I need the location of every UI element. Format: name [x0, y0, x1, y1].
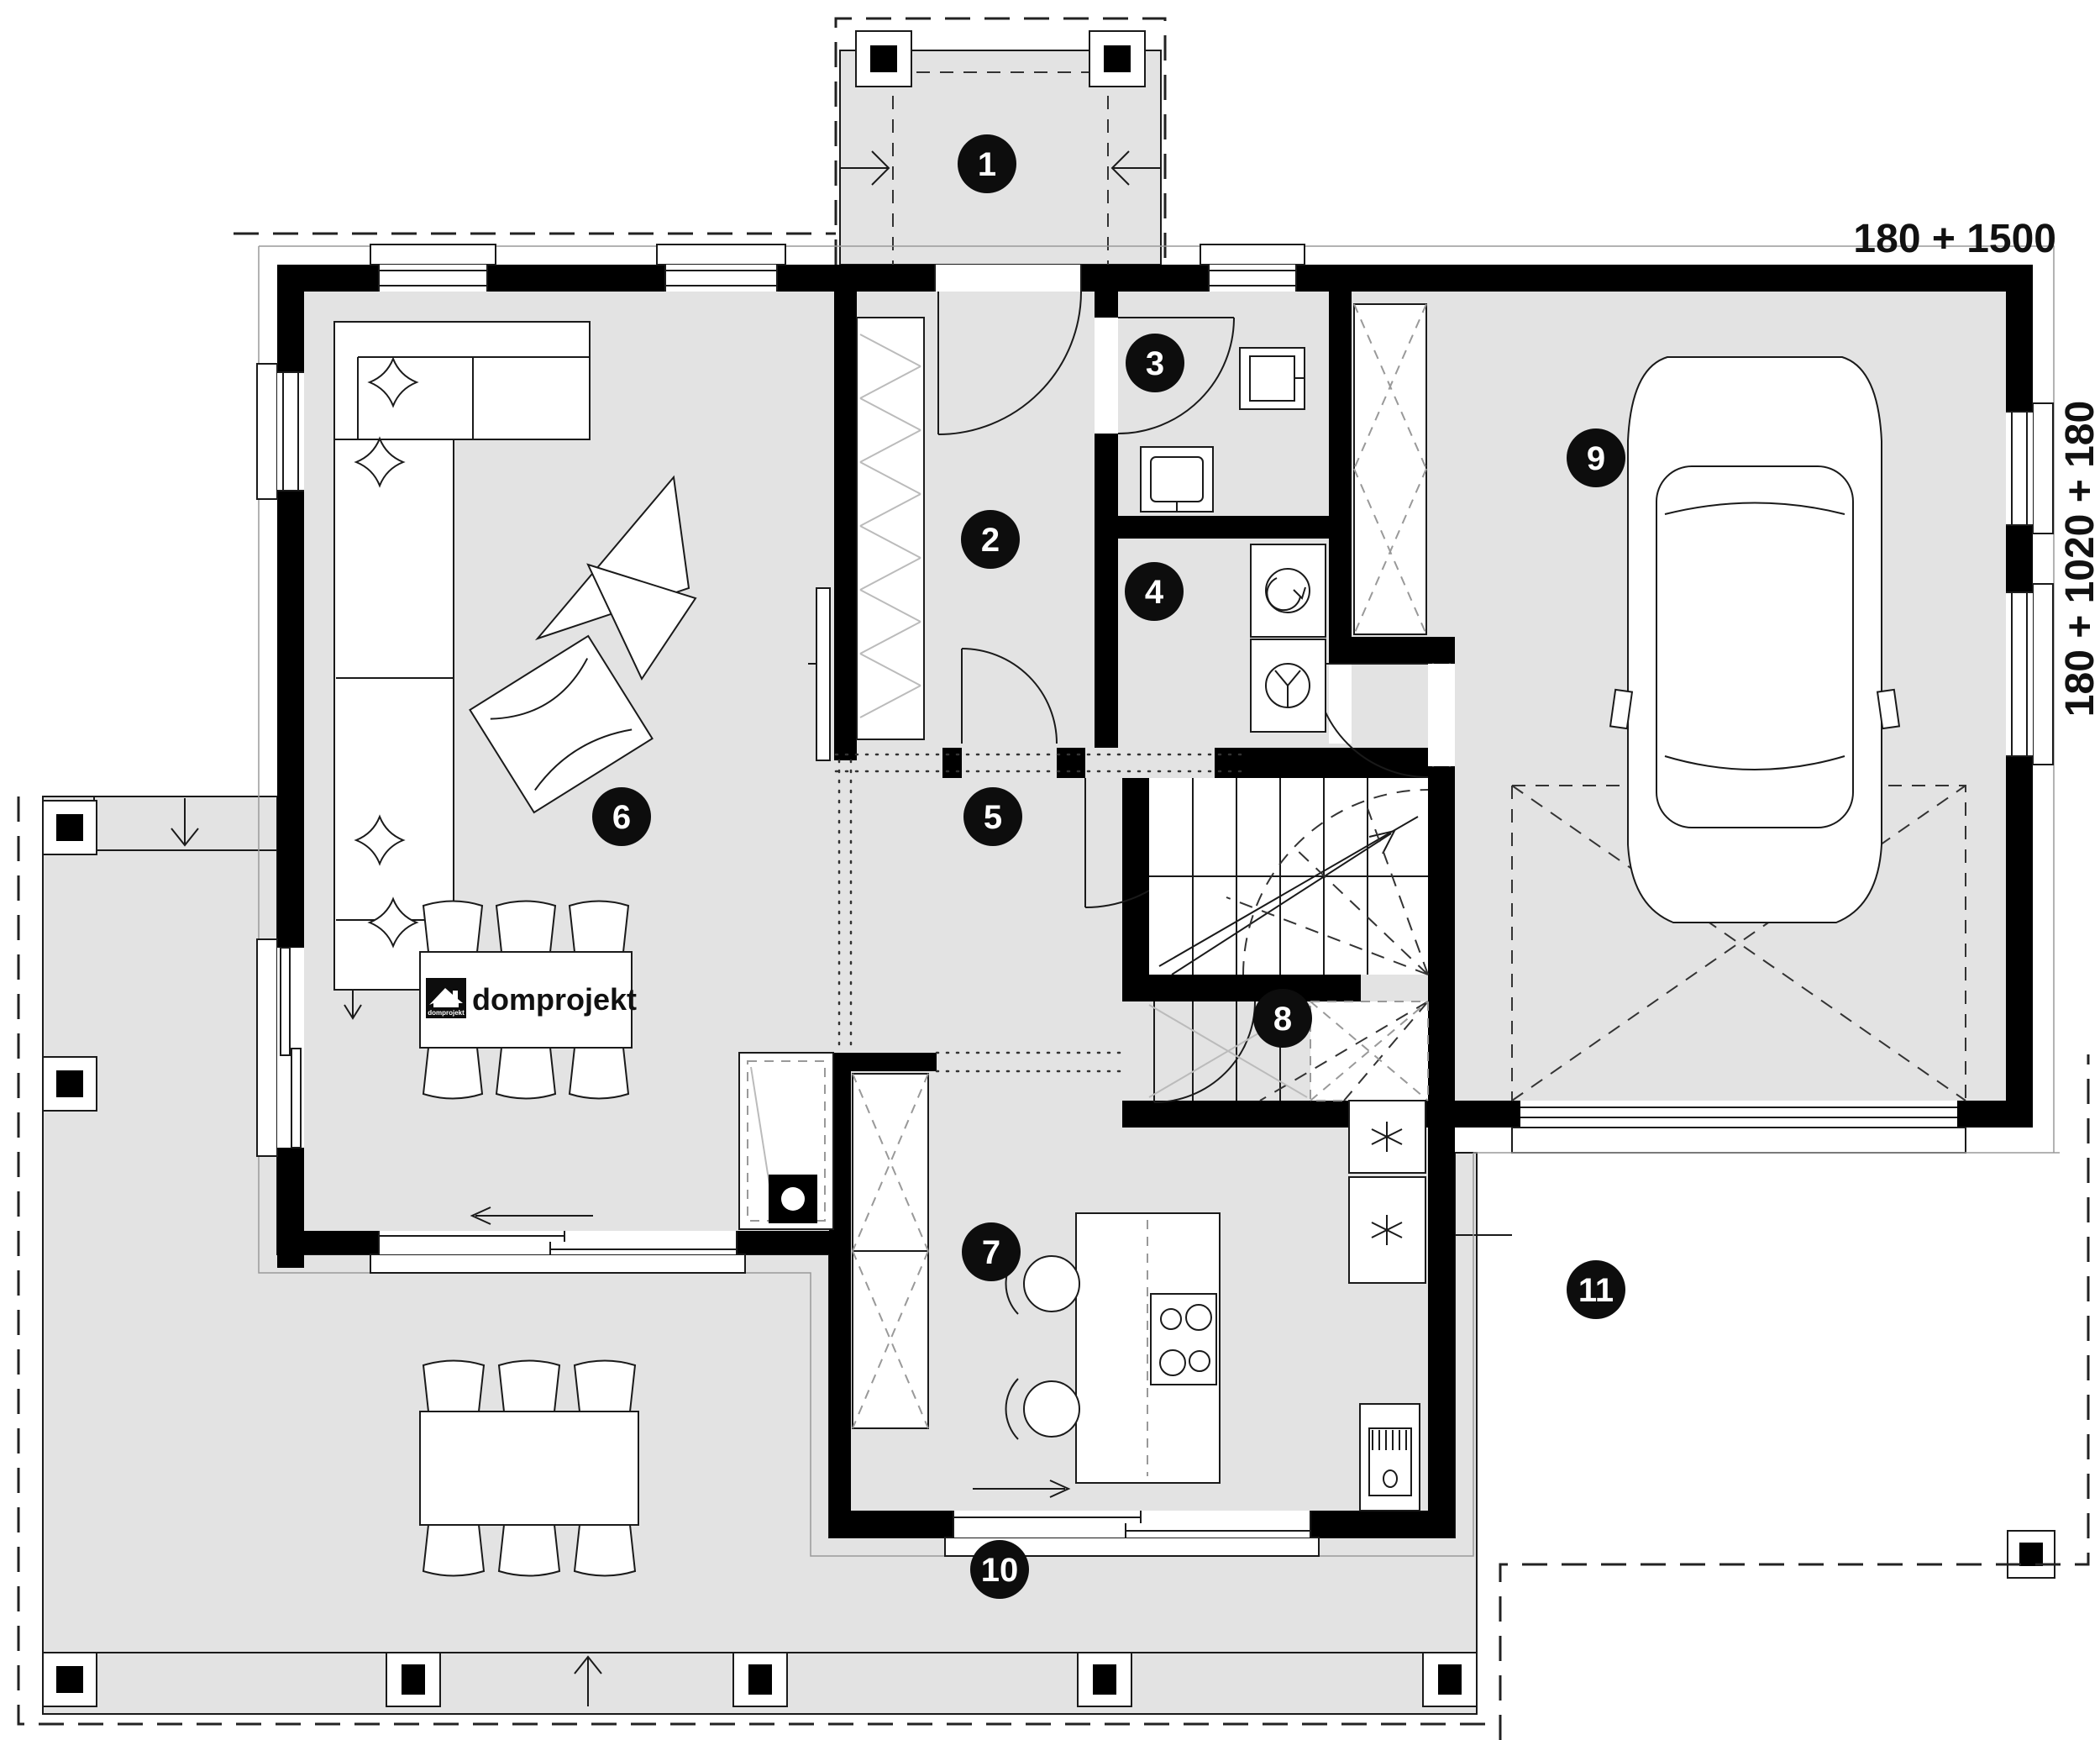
pantry-cabinets: [853, 1074, 928, 1428]
room-number: 3: [1146, 345, 1164, 382]
room-number: 1: [978, 146, 996, 183]
dining-table: domprojekt domprojekt: [420, 902, 637, 1099]
floor-plan-page: domprojekt domprojekt: [0, 0, 2100, 1740]
room-number: 5: [984, 799, 1002, 836]
room-number: 7: [982, 1234, 1000, 1271]
garage-wardrobe: [1354, 304, 1426, 634]
washbasin: [1240, 348, 1305, 409]
outdoor-dining-table: [420, 1361, 638, 1576]
window: [370, 244, 496, 292]
dimension-right-side: 180 + 1020 + 180: [2058, 401, 2100, 717]
fridge-freezer: [1349, 1101, 1425, 1283]
garage-door: [1512, 1101, 1966, 1153]
toilet: [1141, 447, 1213, 512]
sink-counter: [1360, 1404, 1420, 1511]
garage-apron: [1512, 1128, 1966, 1153]
window: [257, 364, 304, 499]
window: [2006, 403, 2053, 534]
entry-closet: [857, 318, 924, 739]
car: [1610, 357, 1899, 923]
room-number: 4: [1145, 574, 1164, 611]
window: [657, 244, 785, 292]
room-number: 8: [1273, 1001, 1292, 1038]
room-number: 11: [1578, 1272, 1614, 1309]
window: [1200, 244, 1305, 292]
room-number: 10: [981, 1552, 1019, 1589]
kitchen-island: [1076, 1213, 1220, 1483]
window: [2006, 584, 2053, 765]
room-number: 6: [612, 799, 631, 836]
dryer: [1251, 639, 1326, 732]
fireplace-counter: [739, 1053, 833, 1229]
domprojekt-logo: domprojekt domprojekt: [426, 978, 637, 1018]
logo-text: domprojekt: [472, 982, 637, 1017]
logo-tiny-text: domprojekt: [428, 1009, 465, 1017]
washing-machine: [1251, 544, 1326, 637]
dimension-top-right: 180 + 1500: [1853, 217, 2056, 261]
room-number: 9: [1587, 440, 1605, 477]
room-number: 2: [981, 522, 1000, 559]
driveway-area: [1473, 1153, 2060, 1578]
floor-plan: domprojekt domprojekt: [0, 0, 2100, 1740]
